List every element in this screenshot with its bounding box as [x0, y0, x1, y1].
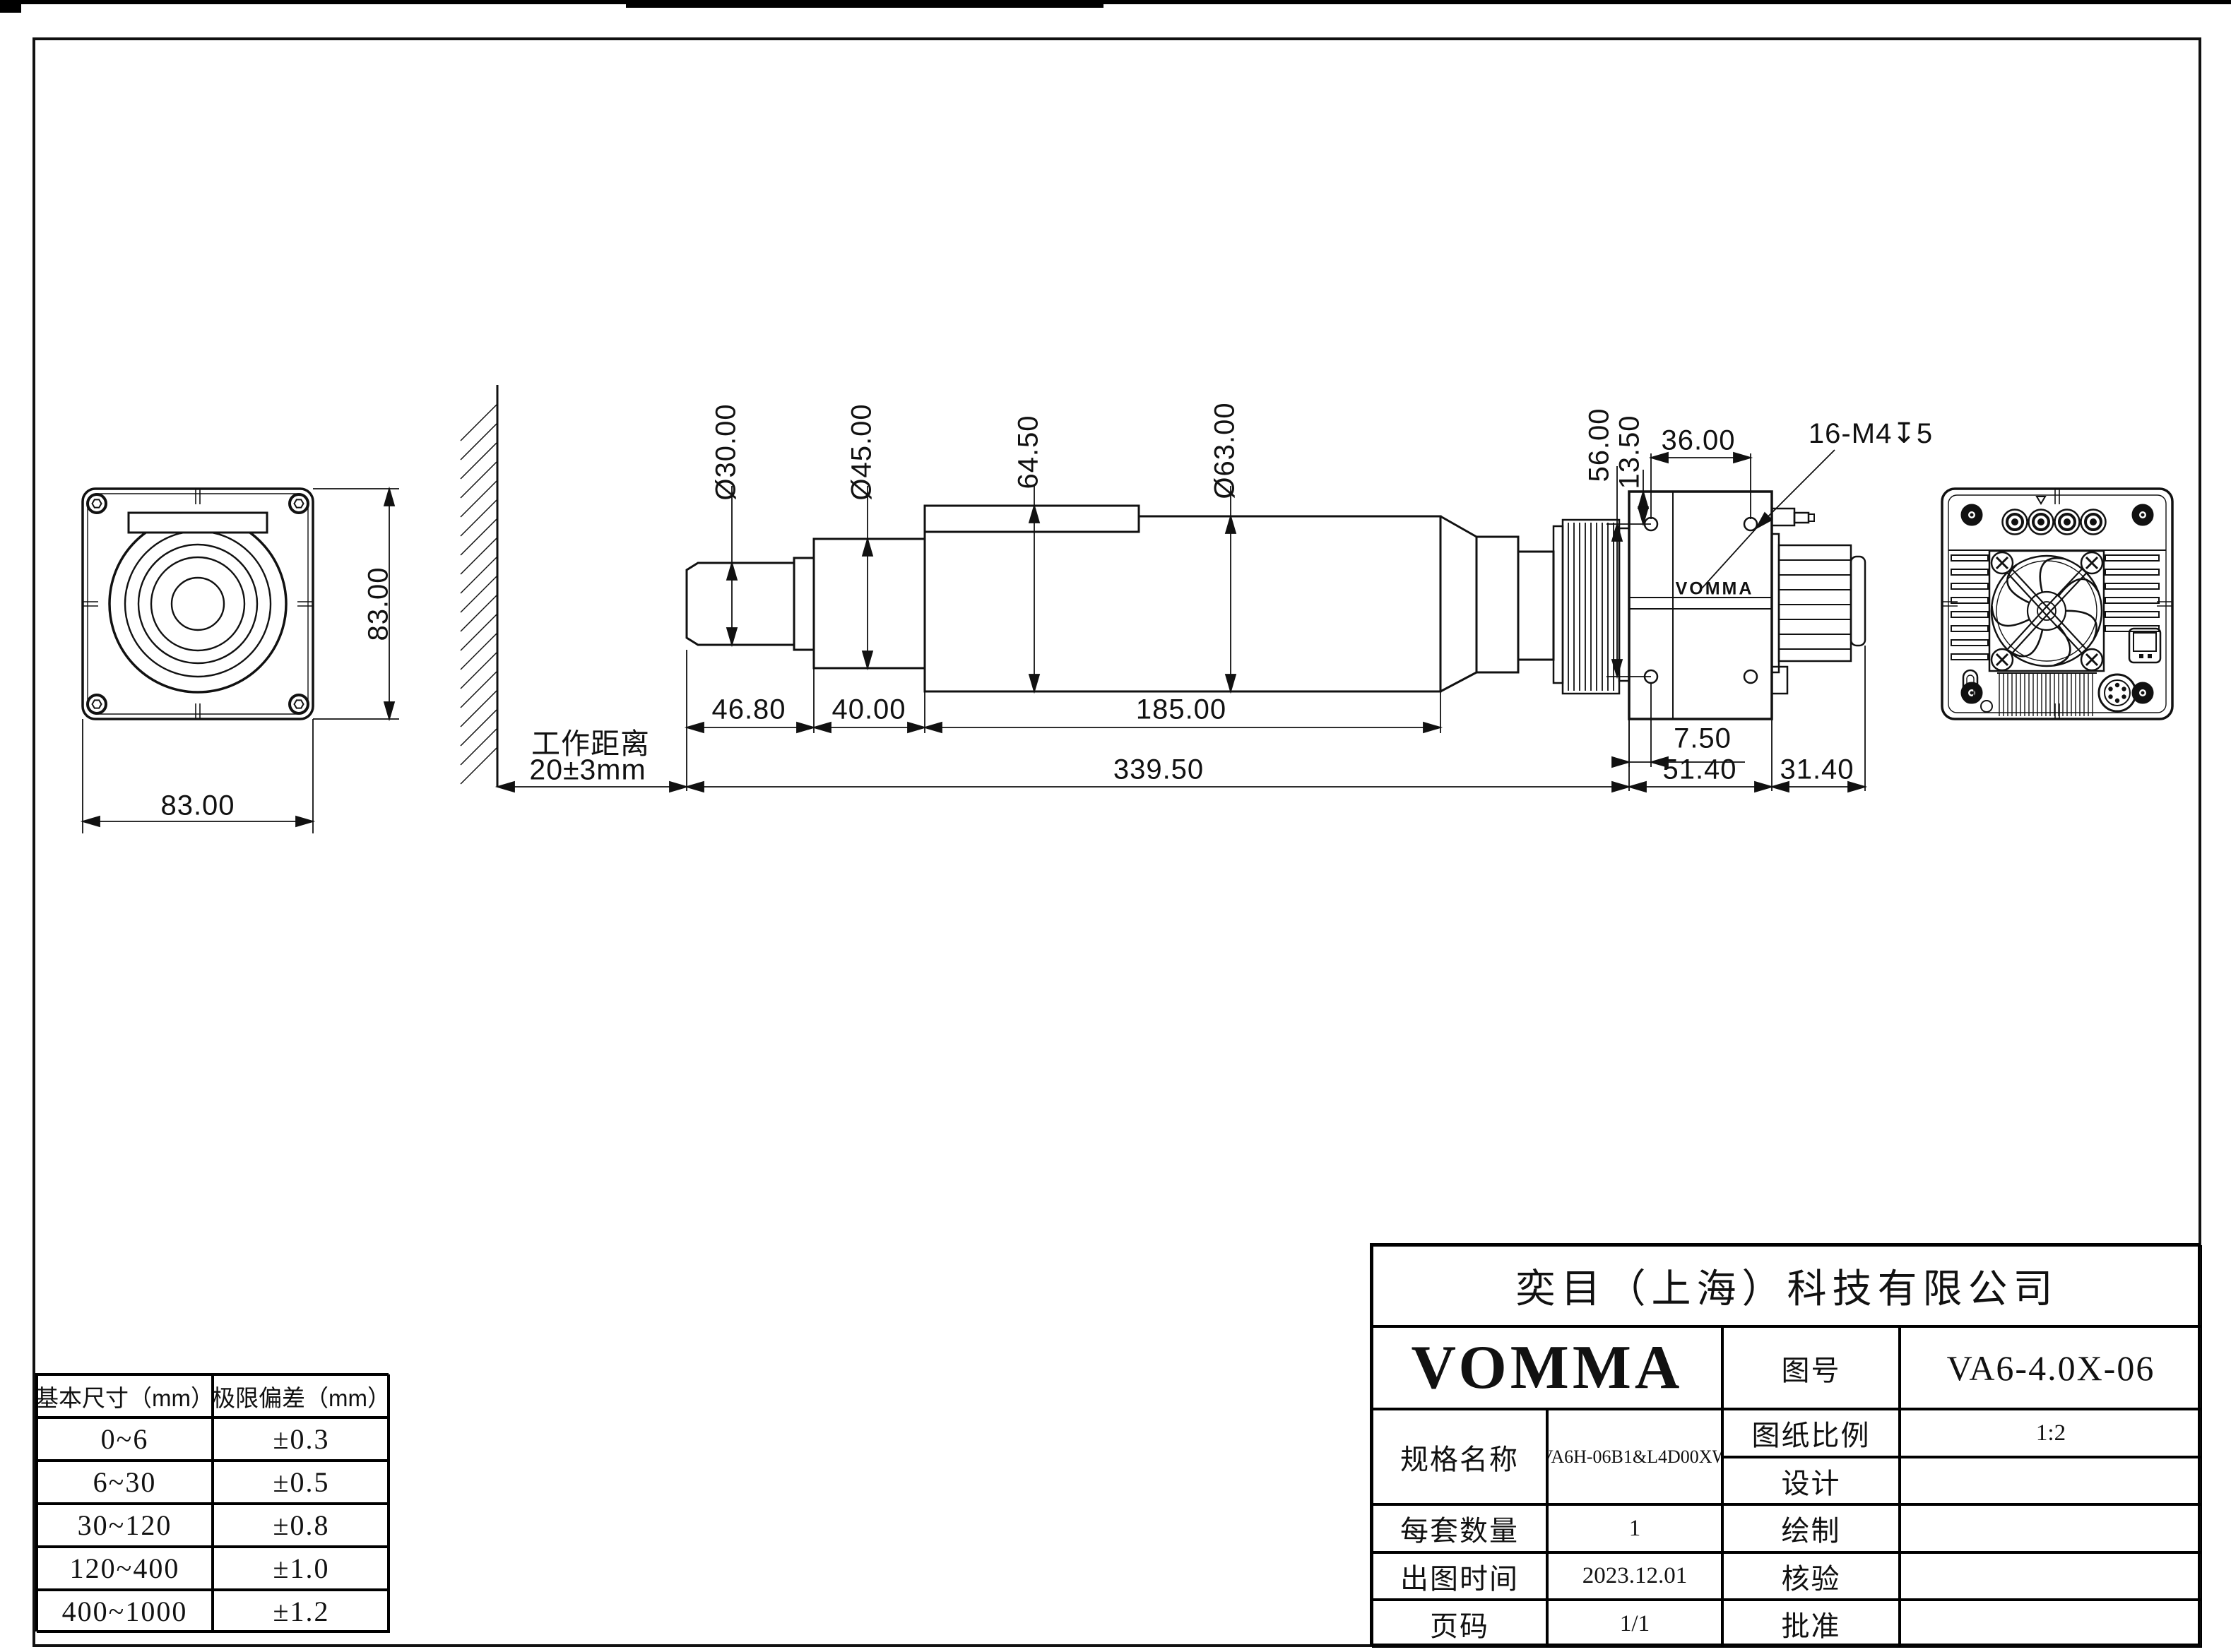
tolerance-row-range: 30~120 [37, 1504, 213, 1547]
coax-connector-1 [2003, 510, 2028, 535]
status-led [1981, 701, 1992, 712]
design-value [1900, 1457, 2202, 1504]
tolerance-row-range: 6~30 [37, 1461, 213, 1504]
front-slot [129, 513, 267, 533]
approve-label: 批准 [1722, 1600, 1900, 1648]
bellows-striations [1999, 673, 2093, 716]
dia-63-dim: Ø63.00 [1209, 402, 1241, 499]
front-screw-tr [290, 494, 308, 513]
main-body [925, 516, 1440, 691]
lens-tip [687, 563, 794, 645]
tolerance-row-value: ±0.8 [213, 1504, 390, 1547]
len-56-dim: 56.00 [1584, 408, 1616, 482]
brand-name: VOMMA [1372, 1326, 1722, 1409]
working-distance-value: 20±3mm [529, 754, 646, 787]
tolerance-header-deviation: 极限偏差（mm） [213, 1374, 390, 1418]
tolerance-row-value: ±0.5 [213, 1461, 390, 1504]
drawing-no-value: VA6-4.0X-06 [1900, 1326, 2202, 1409]
nozzle [1772, 509, 1794, 525]
front-width-dim: 83.00 [160, 790, 235, 822]
wall-hatching [461, 404, 497, 784]
len-339-5-dim: 339.50 [1113, 754, 1204, 786]
title-block: 奕目（上海）科技有限公司 VOMMA 图号 VA6-4.0X-06 规格名称 V… [1370, 1243, 2200, 1646]
tolerance-row-value: ±1.0 [213, 1547, 390, 1590]
front-screw-bl [88, 695, 106, 713]
draw-value [1900, 1504, 2202, 1552]
front-screw-tl [88, 494, 106, 513]
spec-label: 规格名称 [1372, 1409, 1547, 1504]
len-7-5-dim: 7.50 [1674, 723, 1732, 755]
tolerance-row-value: ±1.2 [213, 1590, 390, 1633]
dia-30-dim: Ø30.00 [711, 403, 742, 500]
vent-slats-left [1951, 555, 1988, 660]
front-view [83, 489, 313, 719]
len-64-5-dim: 64.50 [1013, 415, 1045, 489]
tolerance-table: 基本尺寸（mm） 极限偏差（mm） 0~6 ±0.3 6~30 ±0.5 30~… [35, 1373, 389, 1632]
data-connector [2129, 629, 2160, 662]
rear-screw-tl [1961, 504, 1982, 525]
qty-label: 每套数量 [1372, 1504, 1547, 1552]
len-46-8-dim: 46.80 [711, 694, 786, 726]
tolerance-row-range: 0~6 [37, 1418, 213, 1461]
power-connector [2099, 675, 2136, 711]
brand-logo-side: VOMMA [1676, 579, 1754, 600]
cooling-fan [1987, 551, 2104, 671]
len-185-dim: 185.00 [1136, 694, 1226, 726]
len-36-dim: 36.00 [1661, 425, 1735, 457]
lens-barrel [814, 539, 925, 668]
page-label: 页码 [1372, 1600, 1547, 1648]
thread-callout: 16-M4↧5 [1809, 417, 1933, 450]
rear-connector-side [1851, 557, 1865, 646]
drawing-sheet: 83.00 83.00 Ø30.00 Ø45.00 64.50 Ø63.00 5… [0, 0, 2231, 1652]
spec-value: VA6H-06B1&L4D00XW [1547, 1409, 1722, 1504]
scale-value: 1:2 [1900, 1409, 2202, 1457]
company-name: 奕目（上海）科技有限公司 [1372, 1245, 2202, 1326]
side-view [461, 385, 1865, 787]
vent-slats-right [2105, 555, 2159, 631]
approve-value [1900, 1600, 2202, 1648]
coax-connector-4 [2081, 510, 2106, 535]
tolerance-header-basic: 基本尺寸（mm） [37, 1374, 213, 1418]
check-label: 核验 [1722, 1552, 1900, 1600]
front-screw-br [290, 695, 308, 713]
index-triangle-marker [2037, 497, 2045, 504]
date-label: 出图时间 [1372, 1552, 1547, 1600]
design-label: 设计 [1722, 1457, 1900, 1504]
len-13-5-dim: 13.50 [1614, 415, 1646, 489]
len-40-dim: 40.00 [832, 694, 906, 726]
tolerance-row-value: ±0.3 [213, 1418, 390, 1461]
draw-label: 绘制 [1722, 1504, 1900, 1552]
scale-label: 图纸比例 [1722, 1409, 1900, 1457]
len-31-4-dim: 31.40 [1780, 754, 1854, 786]
check-value [1900, 1552, 2202, 1600]
page-value: 1/1 [1547, 1600, 1722, 1648]
mount-hole [1744, 670, 1757, 683]
mount-hole [1744, 518, 1757, 530]
qty-value: 1 [1547, 1504, 1722, 1552]
len-51-4-dim: 51.40 [1662, 754, 1736, 786]
coax-connector-2 [2029, 510, 2054, 535]
tolerance-row-range: 400~1000 [37, 1590, 213, 1633]
date-value: 2023.12.01 [1547, 1552, 1722, 1600]
dia-45-dim: Ø45.00 [846, 403, 878, 500]
rear-view [1942, 489, 2172, 719]
tolerance-row-range: 120~400 [37, 1547, 213, 1590]
front-height-dim: 83.00 [363, 566, 395, 641]
rear-screw-tr [2132, 504, 2153, 525]
coax-connector-3 [2055, 510, 2080, 535]
heatsink-side [1779, 545, 1851, 661]
drawing-no-label: 图号 [1722, 1326, 1900, 1409]
